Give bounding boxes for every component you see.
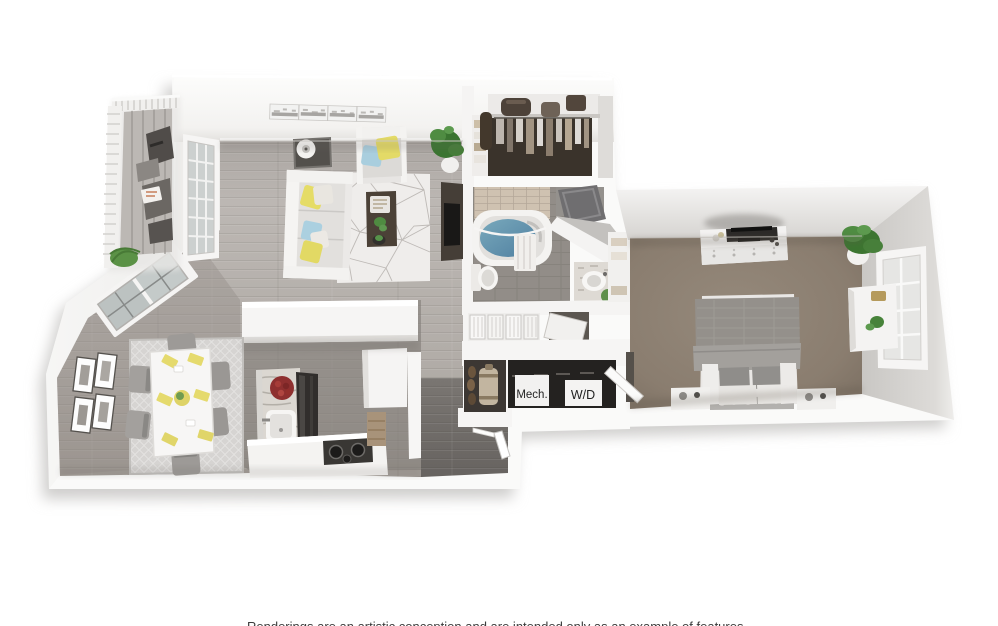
svg-text:Renderings are an artistic con: Renderings are an artistic conception an… — [247, 619, 747, 626]
svg-text:Mech.: Mech. — [516, 389, 547, 401]
svg-text:W/D: W/D — [571, 388, 595, 402]
